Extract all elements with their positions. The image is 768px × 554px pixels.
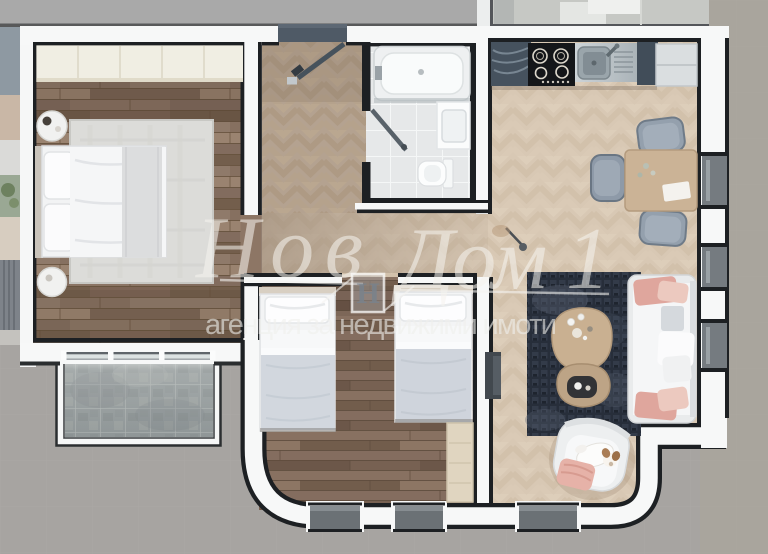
svg-text:Н: Н — [356, 277, 379, 310]
svg-text:агенция за недвижими имоти: агенция за недвижими имоти — [205, 309, 557, 341]
